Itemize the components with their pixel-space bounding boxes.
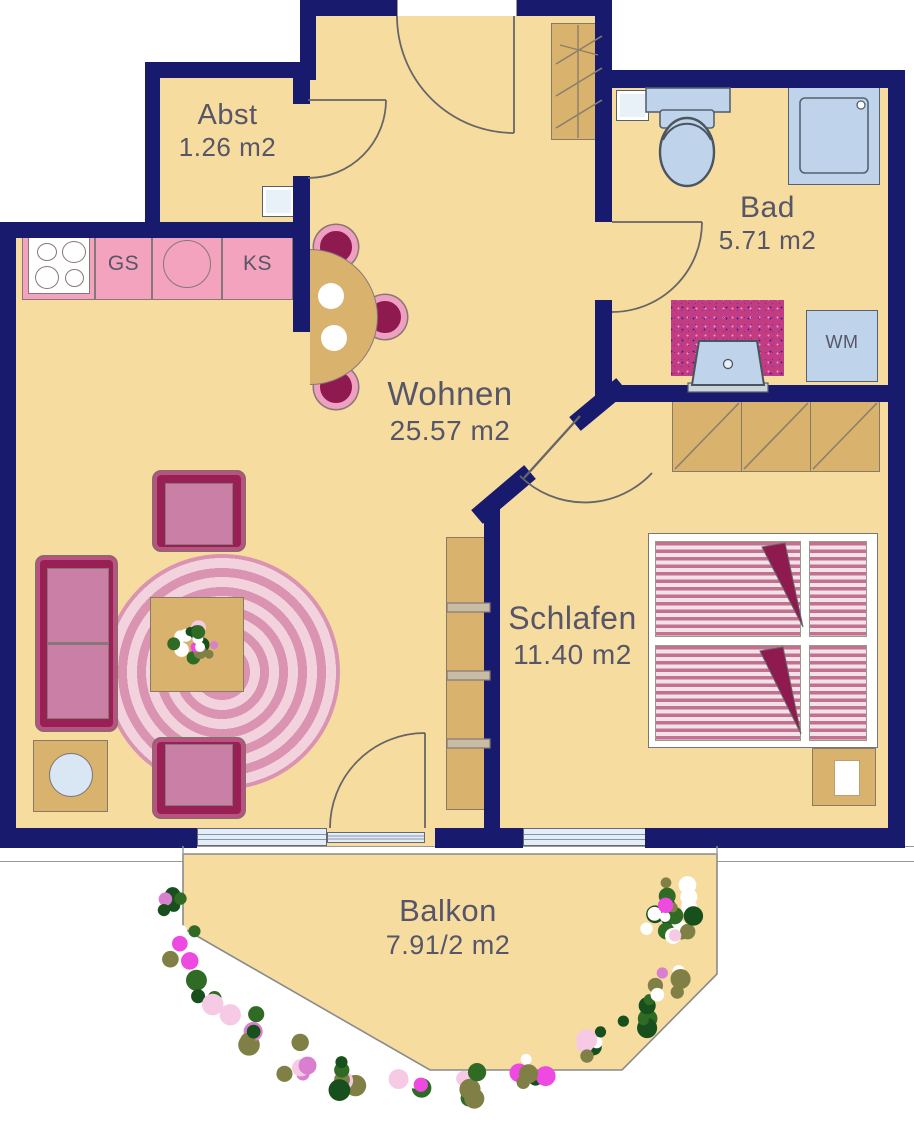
flower-dot bbox=[651, 988, 665, 1002]
flower-dot bbox=[640, 922, 652, 934]
flower-dot bbox=[680, 924, 695, 939]
flower-dot bbox=[191, 625, 205, 639]
room-label-schlafen: Schlafen 11.40 m2 bbox=[470, 600, 675, 671]
flower-dot bbox=[247, 1025, 261, 1039]
bedroom-door-arc bbox=[520, 473, 652, 502]
room-name: Abst bbox=[150, 98, 305, 132]
flower-dot bbox=[669, 929, 681, 941]
room-label-abst: Abst 1.26 m2 bbox=[150, 98, 305, 163]
flower-dot bbox=[220, 1004, 241, 1025]
room-label-balkon: Balkon 7.91/2 m2 bbox=[348, 893, 548, 961]
duvet-fold bbox=[760, 647, 801, 734]
balcony-slab bbox=[183, 854, 717, 1070]
entry-wardrobe-hatch bbox=[560, 45, 598, 55]
flower-dot bbox=[658, 898, 673, 913]
flower-dot bbox=[188, 925, 200, 937]
flower-dot bbox=[167, 637, 180, 650]
flower-dot bbox=[657, 967, 668, 978]
room-name: Schlafen bbox=[470, 600, 675, 638]
room-area: 11.40 m2 bbox=[470, 638, 675, 671]
entry-wardrobe-hatch bbox=[556, 68, 602, 96]
flower-dot bbox=[291, 1034, 308, 1051]
room-area: 1.26 m2 bbox=[150, 132, 305, 163]
bath-door-arc bbox=[612, 222, 702, 312]
entry-wardrobe-hatch bbox=[556, 100, 602, 128]
flower-dot bbox=[162, 951, 179, 968]
appliance-label-ks: KS bbox=[222, 252, 293, 277]
floor-plan: Abst 1.26 m2 Bad 5.71 m2 Wohnen 25.57 m2… bbox=[0, 0, 914, 1124]
flower-dot bbox=[329, 1079, 351, 1101]
flower-dot bbox=[671, 969, 691, 989]
flower-dot bbox=[680, 888, 697, 905]
toilet bbox=[646, 88, 730, 186]
room-area: 7.91/2 m2 bbox=[348, 930, 548, 962]
flower-dot bbox=[210, 641, 218, 649]
appliance-label-wm: WM bbox=[806, 332, 878, 353]
room-name: Wohnen bbox=[350, 375, 550, 414]
flower-dot bbox=[181, 952, 198, 969]
room-area: 25.57 m2 bbox=[350, 414, 550, 447]
flower-dot bbox=[414, 1078, 428, 1092]
flower-dot bbox=[459, 1079, 480, 1100]
wall-diagonal bbox=[575, 385, 622, 424]
appliance-label-gs: GS bbox=[95, 252, 152, 277]
flower-dot bbox=[580, 1049, 593, 1062]
flower-dot bbox=[519, 1064, 538, 1083]
flower-dot bbox=[595, 1026, 606, 1037]
room-label-wohnen: Wohnen 25.57 m2 bbox=[350, 375, 550, 447]
flower-dot bbox=[576, 1029, 597, 1050]
washbasin bbox=[688, 341, 768, 392]
flower-dot bbox=[468, 1063, 486, 1081]
flower-dot bbox=[618, 1015, 629, 1026]
balcony-door-arc bbox=[330, 733, 425, 828]
flower-dot bbox=[638, 1015, 649, 1026]
flower-dot bbox=[146, 873, 168, 895]
flower-dot bbox=[174, 892, 186, 904]
duvet-fold bbox=[762, 543, 803, 627]
flower-dot bbox=[660, 912, 670, 922]
flower-dot bbox=[521, 1054, 532, 1065]
flower-dot bbox=[661, 877, 672, 888]
room-name: Bad bbox=[690, 190, 845, 225]
flower-dot bbox=[299, 1057, 317, 1075]
wardrobe-hatch bbox=[813, 403, 877, 469]
wardrobe-hatch bbox=[675, 403, 739, 469]
flower-dot bbox=[176, 925, 187, 936]
flower-dot bbox=[276, 1066, 292, 1082]
flower-dot bbox=[335, 1056, 347, 1068]
table-bouquet bbox=[167, 620, 218, 664]
flower-dot bbox=[186, 970, 207, 991]
flower-dot bbox=[389, 1069, 409, 1089]
flower-dot bbox=[159, 892, 173, 906]
flower-dot bbox=[158, 904, 170, 916]
flower-dot bbox=[684, 906, 703, 925]
abst-door-arc bbox=[308, 100, 386, 178]
entry-door-arc bbox=[397, 16, 514, 133]
room-area: 5.71 m2 bbox=[690, 225, 845, 256]
wardrobe-hatch bbox=[744, 403, 808, 469]
entry-doorway bbox=[397, 0, 517, 16]
flower-dot bbox=[279, 1048, 292, 1061]
flower-dot bbox=[172, 936, 188, 952]
flower-dot bbox=[536, 1066, 556, 1086]
room-label-bad: Bad 5.71 m2 bbox=[690, 190, 845, 256]
shower-pan bbox=[800, 98, 868, 173]
room-name: Balkon bbox=[348, 893, 548, 930]
flower-dot bbox=[248, 1006, 264, 1022]
